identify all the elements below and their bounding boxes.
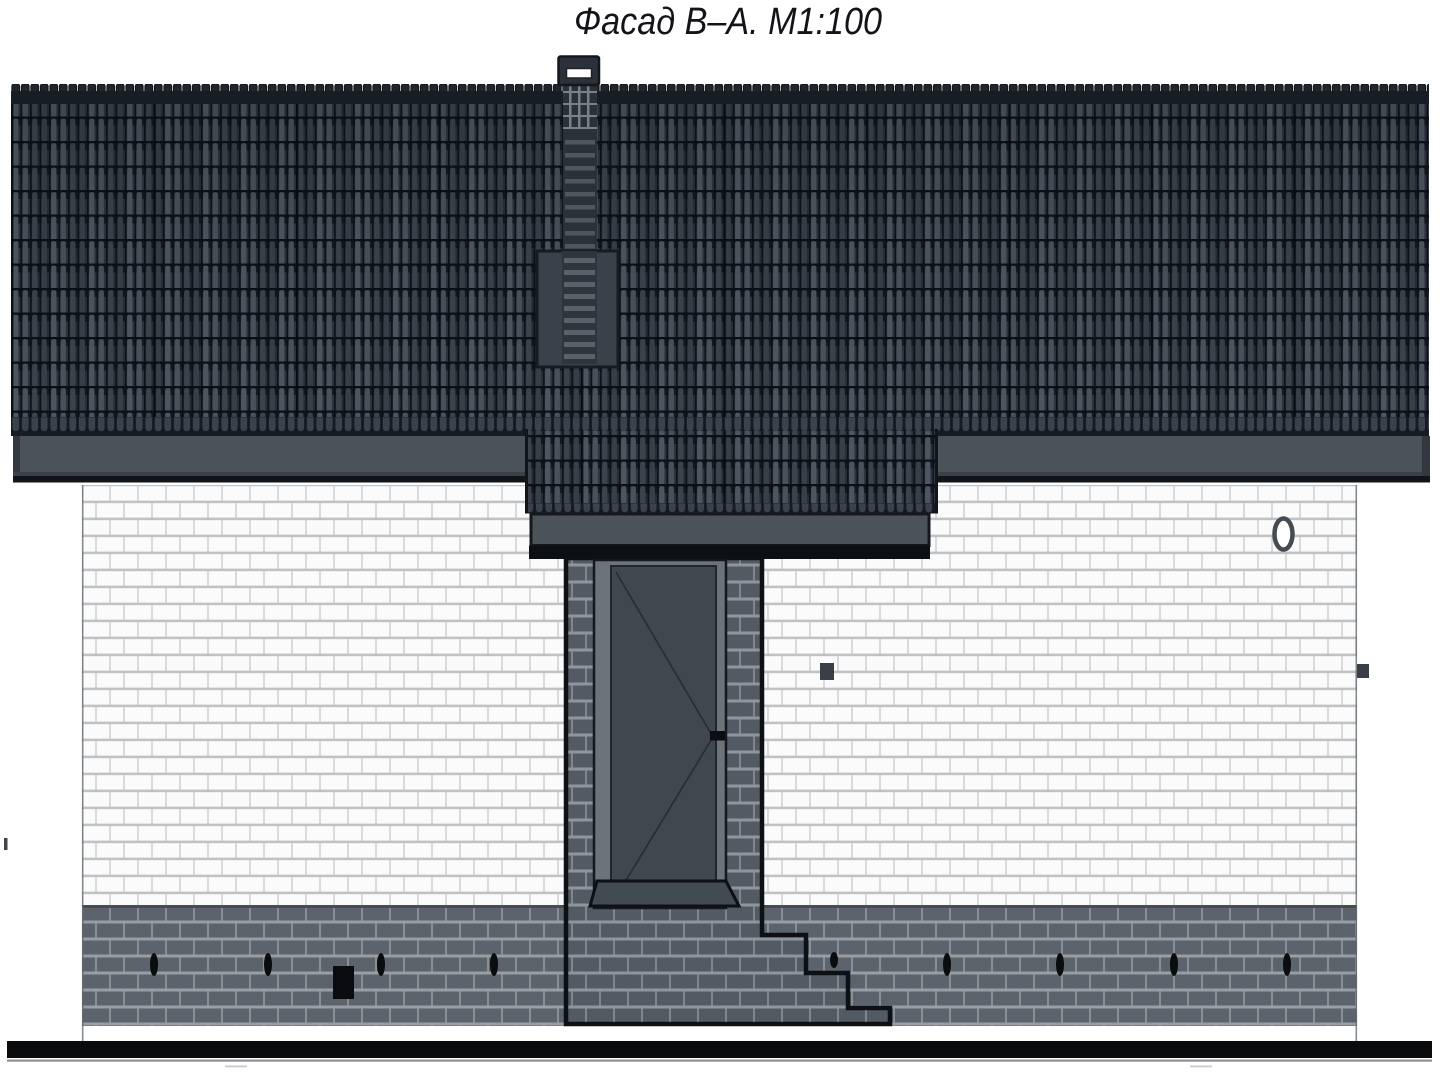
svg-text:Фасад В–А. М1:100: Фасад В–А. М1:100 [574,1,882,43]
